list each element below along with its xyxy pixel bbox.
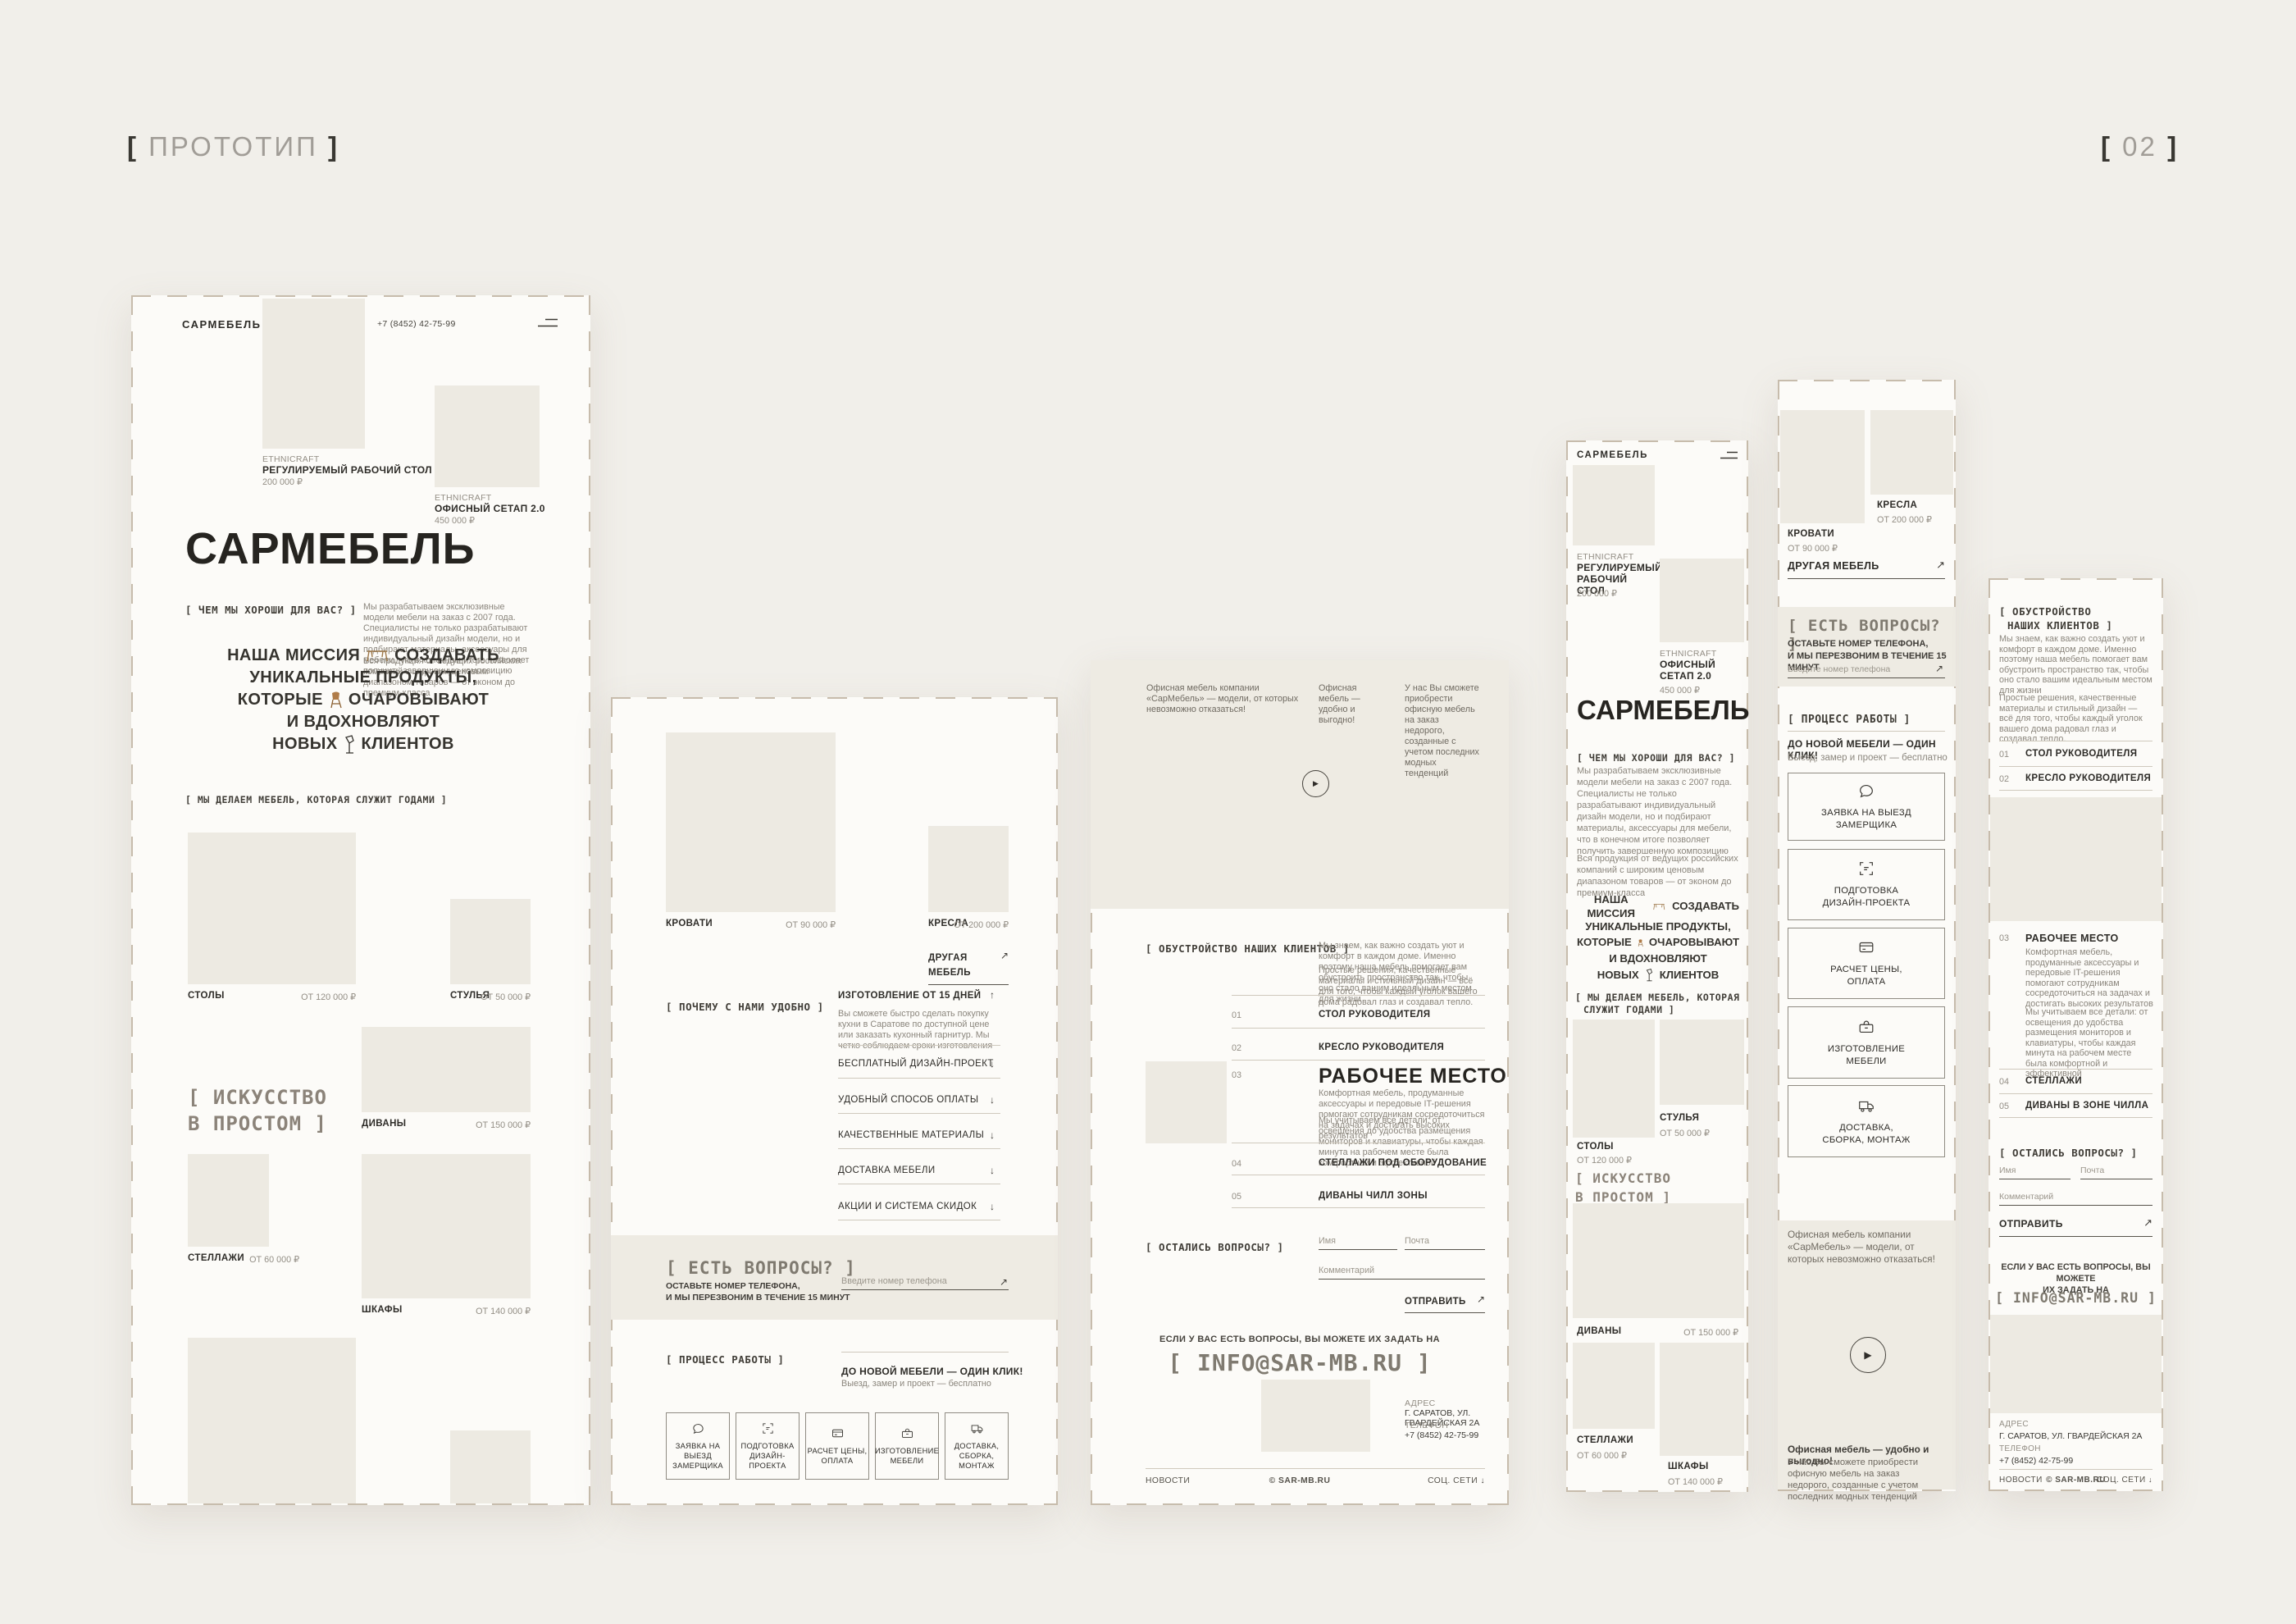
scan-icon xyxy=(761,1421,775,1435)
divider xyxy=(1232,1143,1485,1143)
accordion-item-title[interactable]: ИЗГОТОВЛЕНИЕ ОТ 15 ДНЕЙ xyxy=(838,991,981,1001)
arrow-up-right-icon: ↗ xyxy=(1477,1293,1485,1305)
promo-text: У нас Вы сможете приобрести офисную мебе… xyxy=(1405,683,1480,779)
art-label-line: [ ИСКУССТВО xyxy=(188,1084,327,1111)
phone-value: +7 (8452) 42-75-99 xyxy=(1405,1430,1478,1440)
divider xyxy=(838,1220,1000,1220)
product-brand: ETHNICRAFT xyxy=(1577,552,1634,562)
mission-statement: НАША МИССИЯ СОЗДАВАТЬ УНИКАЛЬНЫЕ ПРОДУКТ… xyxy=(221,645,505,755)
list-item-title[interactable]: КРЕСЛО РУКОВОДИТЕЛЯ xyxy=(1319,1042,1444,1052)
divider xyxy=(838,1148,1000,1149)
other-furniture-link[interactable]: ДРУГАЯ МЕБЕЛЬ ↗ xyxy=(928,950,1009,985)
arrow-up-right-icon[interactable]: ↗ xyxy=(1000,1276,1008,1288)
address-label: АДРЕС xyxy=(1999,1420,2029,1429)
process-step-label: ПОДГОТОВКАДИЗАЙН-ПРОЕКТА xyxy=(736,1441,799,1471)
product-name: ОФИСНЫЙ СЕТАП 2.0 xyxy=(1660,659,1738,682)
promo-text: У нас Вы сможете приобрести офисную мебе… xyxy=(1788,1457,1943,1503)
category-image xyxy=(1573,1203,1744,1318)
list-item-image xyxy=(1146,1061,1227,1143)
category-name: СТЕЛЛАЖИ xyxy=(1577,1435,1633,1445)
product-image xyxy=(1660,559,1744,642)
arrow-up-right-icon: ↗ xyxy=(1000,950,1009,961)
name-input[interactable] xyxy=(1319,1236,1397,1250)
hero-title: САРМЕБЕЛЬ xyxy=(185,523,476,574)
product-image xyxy=(262,299,365,449)
mission-line: И ВДОХНОВЛЯЮТ xyxy=(1577,952,1739,966)
cta-subtitle-line: И МЫ ПЕРЕЗВОНИМ В ТЕЧЕНИЕ 15 МИНУТ xyxy=(666,1293,850,1304)
header-phone: +7 (8452) 42-75-99 xyxy=(377,319,456,329)
phone-value: +7 (8452) 42-75-99 xyxy=(1999,1456,2073,1466)
divider xyxy=(1146,1468,1485,1469)
category-image xyxy=(1660,1343,1744,1456)
divider xyxy=(1232,995,1485,996)
artboard-mobile-catalog: КРОВАТИ ОТ 90 000 ₽ КРЕСЛА ОТ 200 000 ₽ … xyxy=(1778,380,1956,1491)
category-name: ШКАФЫ xyxy=(1668,1462,1709,1471)
mission-text: НОВЫХ xyxy=(1597,969,1639,983)
section-label-clients: [ ОБУСТРОЙСТВО НАШИХ КЛИЕНТОВ ] xyxy=(1999,604,2112,632)
artboard-mobile-home: САРМЕБЕЛЬ ETHNICRAFT РЕГУЛИРУЕМЫЙ РАБОЧИ… xyxy=(1566,440,1748,1492)
list-item-title[interactable]: СТЕЛЛАЖИ ПОД ОБОРУДОВАНИЕ xyxy=(1319,1158,1487,1168)
cta-subtitle-line: ОСТАВЬТЕ НОМЕР ТЕЛЕФОНА, xyxy=(666,1281,850,1293)
list-num: 02 xyxy=(1999,774,2009,784)
section-label-about: [ ЧЕМ МЫ ХОРОШИ ДЛЯ ВАС? ] xyxy=(1577,752,1735,764)
category-price: ОТ 140 000 ₽ xyxy=(449,1306,531,1316)
list-num: 05 xyxy=(1999,1102,2009,1111)
mission-text: ОЧАРОВЫВАЮТ xyxy=(348,689,489,711)
hero-title: САРМЕБЕЛЬ xyxy=(1577,695,1750,726)
category-price: ОТ 140 000 ₽ xyxy=(1668,1476,1723,1487)
divider xyxy=(1999,1469,2152,1470)
arrow-down-icon: ↓ xyxy=(1481,1476,1486,1485)
clients-paragraph: Мы знаем, как важно создать уют и комфор… xyxy=(1999,634,2153,696)
divider xyxy=(1232,1060,1485,1061)
cta-subtitle-line: ОСТАВЬТЕ НОМЕР ТЕЛЕФОНА, xyxy=(1788,638,1956,650)
process-title: ДО НОВОЙ МЕБЕЛИ — ОДИН КЛИК! xyxy=(841,1366,1023,1377)
product-brand: ETHNICRAFT xyxy=(262,454,320,464)
category-image xyxy=(1573,1020,1655,1138)
mission-text: И ВДОХНОВЛЯЮТ xyxy=(287,711,440,733)
divider xyxy=(1999,741,2152,741)
section-label-catalog: [ МЫ ДЕЛАЕМ МЕБЕЛЬ, КОТОРАЯ СЛУЖИТ ГОДАМ… xyxy=(1575,992,1739,1016)
divider xyxy=(1232,1207,1485,1208)
mission-line: УНИКАЛЬНЫЕ ПРОДУКТЫ, xyxy=(1577,920,1739,934)
divider xyxy=(1232,1175,1485,1175)
promo-text: Офисная мебель компании «СарМебель» — мо… xyxy=(1788,1229,1935,1266)
chat-icon xyxy=(691,1421,705,1435)
truck-icon xyxy=(1857,1097,1875,1115)
process-step-card: ДОСТАВКА,СБОРКА, МОНТАЖ xyxy=(945,1412,1009,1480)
section-label-catalog: [ МЫ ДЕЛАЕМ МЕБЕЛЬ, КОТОРАЯ СЛУЖИТ ГОДАМ… xyxy=(185,794,447,805)
mission-text: НОВЫХ xyxy=(272,733,337,755)
mission-text: УНИКАЛЬНЫЕ ПРОДУКТЫ, xyxy=(249,667,476,689)
process-step-label: ДОСТАВКА,СБОРКА, МОНТАЖ xyxy=(1822,1122,1910,1147)
divider xyxy=(838,1045,1000,1046)
contact-question: ЕСЛИ У ВАС ЕСТЬ ВОПРОСЫ, ВЫ МОЖЕТЕ ИХ ЗА… xyxy=(1091,1334,1509,1344)
table-icon xyxy=(1652,902,1665,910)
mission-statement: НАША МИССИЯ СОЗДАВАТЬ УНИКАЛЬНЫЕ ПРОДУКТ… xyxy=(1577,893,1739,985)
product-image xyxy=(435,385,540,487)
category-price: ОТ 60 000 ₽ xyxy=(221,1254,299,1265)
other-furniture-label: ДРУГАЯ МЕБЕЛЬ xyxy=(928,953,971,978)
scan-icon xyxy=(1857,860,1875,878)
catalog-label-line: СЛУЖИТ ГОДАМИ ] xyxy=(1583,1004,1739,1016)
art-label-line: [ ИСКУССТВО xyxy=(1575,1169,1671,1188)
artboard-desktop-catalog: КРОВАТИ ОТ 90 000 ₽ КРЕСЛА ОТ 200 000 ₽ … xyxy=(611,697,1058,1505)
category-image xyxy=(450,1430,531,1503)
list-num: 03 xyxy=(1232,1070,1241,1080)
clients-label-line: НАШИХ КЛИЕНТОВ ] xyxy=(2007,618,2112,632)
category-name: СТОЛЫ xyxy=(188,991,225,1001)
category-price: ОТ 120 000 ₽ xyxy=(274,992,356,1002)
list-num: 03 xyxy=(1999,933,2009,943)
play-button[interactable]: ▶ xyxy=(1302,770,1329,797)
list-item-title[interactable]: ДИВАНЫ В ЗОНЕ ЧИЛЛА xyxy=(2025,1101,2148,1111)
product-brand: ETHNICRAFT xyxy=(1660,649,1717,659)
footer-social-label: СОЦ. СЕТИ xyxy=(1428,1476,1478,1485)
accordion-item-title[interactable]: ДОСТАВКА МЕБЕЛИ xyxy=(838,1166,935,1175)
phone-input[interactable] xyxy=(1788,664,1945,678)
email-input[interactable] xyxy=(2080,1166,2152,1179)
category-price: ОТ 50 000 ₽ xyxy=(1660,1128,1710,1138)
process-step-card: ДОСТАВКА,СБОРКА, МОНТАЖ xyxy=(1788,1085,1945,1157)
mission-text: И ВДОХНОВЛЯЮТ xyxy=(1609,952,1706,966)
category-image xyxy=(666,732,836,912)
menu-burger-icon[interactable] xyxy=(538,318,558,327)
process-step-label: РАСЧЕТ ЦЕНЫ,ОПЛАТА xyxy=(1830,964,1902,988)
accordion-item-title[interactable]: БЕСПЛАТНЫЙ ДИЗАЙН-ПРОЕКТ xyxy=(838,1059,994,1069)
arrow-up-right-icon[interactable]: ↗ xyxy=(1935,663,1943,674)
section-label-process: [ ПРОЦЕСС РАБОТЫ ] xyxy=(1788,714,1911,726)
contact-email-link[interactable]: [ INFO@SAR-MB.RU ] xyxy=(1988,1290,2163,1306)
phone-label: ТЕЛЕФОН xyxy=(1999,1444,2041,1453)
mission-line: И ВДОХНОВЛЯЮТ xyxy=(221,711,505,733)
category-name: ШКАФЫ xyxy=(362,1305,403,1315)
divider xyxy=(838,1184,1000,1184)
category-name: СТОЛЫ xyxy=(1577,1142,1614,1152)
mission-text: КОТОРЫЕ xyxy=(1577,936,1632,950)
mission-text: СОЗДАВАТЬ xyxy=(394,645,499,667)
other-furniture-label: ДРУГАЯ МЕБЕЛЬ xyxy=(1788,560,1879,572)
page-number-label: [ 02 ] xyxy=(2101,131,2179,162)
process-step-label: ИЗГОТОВЛЕНИЕМЕБЕЛИ xyxy=(875,1446,939,1466)
artboard-mobile-about: [ ОБУСТРОЙСТВО НАШИХ КЛИЕНТОВ ] Мы знаем… xyxy=(1988,578,2163,1491)
category-name: ДИВАНЫ xyxy=(1577,1326,1621,1336)
submit-button[interactable]: ОТПРАВИТЬ ↗ xyxy=(1999,1216,2152,1237)
category-price: ОТ 200 000 ₽ xyxy=(943,919,1009,930)
section-label-form: [ ОСТАЛИСЬ ВОПРОСЫ? ] xyxy=(1999,1147,2138,1159)
category-image xyxy=(1573,1343,1655,1429)
category-price: ОТ 60 000 ₽ xyxy=(1577,1450,1627,1461)
comment-input[interactable] xyxy=(1319,1266,1485,1280)
contact-question-line: ЕСЛИ У ВАС ЕСТЬ ВОПРОСЫ, ВЫ МОЖЕТЕ xyxy=(1988,1261,2163,1284)
truck-icon xyxy=(970,1421,984,1435)
product-image xyxy=(1573,465,1655,545)
bracket: [ xyxy=(2101,131,2112,162)
mission-text: КЛИЕНТОВ xyxy=(362,733,454,755)
process-step-label: ИЗГОТОВЛЕНИЕМЕБЕЛИ xyxy=(1828,1043,1905,1068)
category-name: КРЕСЛА xyxy=(1877,500,1917,510)
divider xyxy=(1232,1028,1485,1029)
art-label-line: В ПРОСТОМ ] xyxy=(188,1111,327,1137)
cta-label: [ ЕСТЬ ВОПРОСЫ? ] xyxy=(666,1258,856,1278)
process-step-card: РАСЧЕТ ЦЕНЫ,ОПЛАТА xyxy=(1788,928,1945,999)
product-price: 200 000 ₽ xyxy=(262,477,303,487)
arrow-down-icon: ↓ xyxy=(990,1165,995,1176)
chair-icon xyxy=(1638,937,1644,949)
chair-icon xyxy=(329,691,343,709)
list-item-title[interactable]: ДИВАНЫ ЧИЛЛ ЗОНЫ xyxy=(1319,1191,1428,1201)
play-button[interactable]: ▶ xyxy=(1850,1337,1886,1373)
footer-social-label: СОЦ. СЕТИ xyxy=(2097,1476,2145,1485)
divider xyxy=(1999,1093,2152,1094)
arrow-down-icon: ↓ xyxy=(990,1201,995,1212)
mission-line: КОТОРЫЕ ОЧАРОВЫВАЮТ xyxy=(221,689,505,711)
play-icon: ▶ xyxy=(1313,779,1319,788)
process-step-label: ЗАЯВКА НА ВЫЕЗДЗАМЕРЩИКА xyxy=(1821,807,1911,832)
comment-input[interactable] xyxy=(1999,1192,2152,1206)
divider xyxy=(838,1113,1000,1114)
list-item-title[interactable]: СТЕЛЛАЖИ xyxy=(2025,1076,2082,1086)
category-image xyxy=(362,1027,531,1112)
category-name: СТУЛЬЯ xyxy=(1660,1113,1699,1123)
bracket: ] xyxy=(2167,131,2179,162)
process-step-card: ЗАЯВКА НА ВЫЕЗДЗАМЕРЩИКА xyxy=(666,1412,730,1480)
play-icon: ▶ xyxy=(1864,1349,1871,1361)
phone-label: ТЕЛЕФОН xyxy=(1405,1421,1448,1430)
mission-line: НОВЫХ КЛИЕНТОВ xyxy=(1577,965,1739,985)
list-item-title[interactable]: СТОЛ РУКОВОДИТЕЛЯ xyxy=(1319,1010,1430,1020)
list-item-title[interactable]: СТОЛ РУКОВОДИТЕЛЯ xyxy=(2025,749,2137,759)
video-section: Офисная мебель компании «СарМебель» — мо… xyxy=(1091,660,1509,909)
list-item-title[interactable]: КРЕСЛО РУКОВОДИТЕЛЯ xyxy=(2025,773,2151,783)
art-in-simple-label: [ ИСКУССТВО В ПРОСТОМ ] xyxy=(1575,1169,1671,1207)
mission-text: УНИКАЛЬНЫЕ ПРОДУКТЫ, xyxy=(1585,920,1731,934)
product-name: ОФИСНЫЙ СЕТАП 2.0 xyxy=(435,503,545,514)
process-step-card: ПОДГОТОВКАДИЗАЙН-ПРОЕКТА xyxy=(736,1412,799,1480)
video-section: Офисная мебель компании «СарМебель» — мо… xyxy=(1778,1220,1956,1489)
cta-strip: [ ЕСТЬ ВОПРОСЫ? ] ОСТАВЬТЕ НОМЕР ТЕЛЕФОН… xyxy=(611,1235,1058,1320)
section-label-form: [ ОСТАЛИСЬ ВОПРОСЫ? ] xyxy=(1146,1241,1284,1253)
bracket: ] xyxy=(328,131,339,162)
submit-label: ОТПРАВИТЬ xyxy=(1405,1297,1466,1307)
category-image xyxy=(188,1154,269,1247)
mission-text: НАША МИССИЯ xyxy=(1577,893,1646,920)
category-price: ОТ 150 000 ₽ xyxy=(449,1120,531,1130)
phone-input[interactable] xyxy=(841,1276,1009,1290)
category-image xyxy=(188,833,356,984)
arrow-down-icon: ↓ xyxy=(990,1094,995,1106)
accordion-item-title[interactable]: АКЦИИ И СИСТЕМА СКИДОК xyxy=(838,1202,977,1211)
toolbox-icon xyxy=(900,1426,914,1440)
prototype-label: [ ПРОТОТИП ] xyxy=(127,131,339,162)
clients-paragraph: Простые решения, качественные материалы … xyxy=(1319,965,1480,1008)
divider xyxy=(1999,790,2152,791)
process-step-label: ЗАЯВКА НА ВЫЕЗДЗАМЕРЩИКА xyxy=(667,1441,729,1471)
arrow-down-icon: ↓ xyxy=(990,1058,995,1070)
category-price: ОТ 120 000 ₽ xyxy=(1577,1155,1632,1166)
category-price: ОТ 200 000 ₽ xyxy=(1877,514,1932,525)
arrow-down-icon: ↓ xyxy=(2148,1476,2152,1484)
list-num: 04 xyxy=(1999,1077,2009,1087)
promo-text: Офисная мебель — удобно и выгодно! xyxy=(1319,683,1384,726)
mission-text: КОТОРЫЕ xyxy=(238,689,323,711)
prototype-poster: { "page": { "proto_bracket_open": "[", "… xyxy=(0,0,2296,1624)
map-placeholder xyxy=(1990,1315,2162,1413)
mission-line: КОТОРЫЕ ОЧАРОВЫВАЮТ xyxy=(1577,934,1739,952)
contact-email-link[interactable]: [ INFO@SAR-MB.RU ] xyxy=(1091,1349,1509,1376)
about-paragraph: Вся продукция от ведущих российских комп… xyxy=(1577,853,1739,899)
address-label: АДРЕС xyxy=(1405,1398,1436,1408)
table-icon xyxy=(366,650,389,662)
mission-text: НАША МИССИЯ xyxy=(227,645,360,667)
list-num: 04 xyxy=(1232,1159,1241,1169)
artboard-desktop-about: Офисная мебель компании «СарМебель» — мо… xyxy=(1091,660,1509,1505)
mission-line: НОВЫХ КЛИЕНТОВ xyxy=(221,733,505,755)
category-name: ДИВАНЫ xyxy=(362,1119,406,1129)
category-name: КРОВАТИ xyxy=(666,919,713,928)
art-in-simple-label: [ ИСКУССТВО В ПРОСТОМ ] xyxy=(188,1084,327,1137)
process-step-card: ИЗГОТОВЛЕНИЕМЕБЕЛИ xyxy=(875,1412,939,1480)
category-image xyxy=(1870,410,1953,495)
divider xyxy=(1999,1117,2152,1118)
section-label-about: [ ЧЕМ МЫ ХОРОШИ ДЛЯ ВАС? ] xyxy=(185,604,357,616)
footer-social-link[interactable]: СОЦ. СЕТИ ↓ xyxy=(2070,1476,2152,1485)
other-furniture-link[interactable]: ДРУГАЯ МЕБЕЛЬ ↗ xyxy=(1788,559,1945,579)
footer-social-link[interactable]: СОЦ. СЕТИ ↓ xyxy=(1403,1476,1485,1485)
lamp-icon xyxy=(1645,969,1653,982)
category-image xyxy=(362,1154,531,1298)
map-placeholder xyxy=(1261,1380,1370,1452)
divider xyxy=(838,1078,1000,1079)
process-step-card: ИЗГОТОВЛЕНИЕМЕБЕЛИ xyxy=(1788,1006,1945,1079)
category-price: ОТ 90 000 ₽ xyxy=(1788,543,1838,554)
category-name: КРОВАТИ xyxy=(1788,529,1834,539)
divider xyxy=(841,1352,1009,1353)
list-item-body: Комфортная мебель, продуманные аксессуар… xyxy=(2025,947,2154,1009)
list-num: 02 xyxy=(1232,1043,1241,1053)
mission-text: КЛИЕНТОВ xyxy=(1660,969,1720,983)
divider xyxy=(1788,731,1945,732)
product-brand: ETHNICRAFT xyxy=(435,493,492,503)
address-value: Г. САРАТОВ, УЛ. ГВАРДЕЙСКАЯ 2А xyxy=(1999,1431,2142,1441)
accordion-item-title[interactable]: УДОБНЫЙ СПОСОБ ОПЛАТЫ xyxy=(838,1095,978,1105)
card-icon xyxy=(1857,938,1875,956)
bracket: [ xyxy=(127,131,139,162)
arrow-up-right-icon: ↗ xyxy=(1936,559,1945,572)
mission-line: НАША МИССИЯ СОЗДАВАТЬ xyxy=(1577,893,1739,920)
prototype-label-text: ПРОТОТИП xyxy=(148,131,318,162)
mission-line: НАША МИССИЯ СОЗДАВАТЬ xyxy=(221,645,505,667)
process-step-label: ДОСТАВКА,СБОРКА, МОНТАЖ xyxy=(945,1441,1008,1471)
category-image xyxy=(188,1338,356,1503)
category-image xyxy=(1660,1020,1744,1105)
accordion-item-title[interactable]: КАЧЕСТВЕННЫЕ МАТЕРИАЛЫ xyxy=(838,1130,984,1140)
lamp-icon xyxy=(344,735,356,755)
process-step-label: ПОДГОТОВКАДИЗАЙН-ПРОЕКТА xyxy=(1823,885,1911,910)
card-icon xyxy=(831,1426,845,1440)
site-logo: САРМЕБЕЛЬ xyxy=(182,318,261,331)
site-logo: САРМЕБЕЛЬ xyxy=(1577,450,1648,460)
name-input[interactable] xyxy=(1999,1166,2070,1179)
chat-icon xyxy=(1857,782,1875,800)
process-step-card: ПОДГОТОВКАДИЗАЙН-ПРОЕКТА xyxy=(1788,849,1945,920)
section-label-process: [ ПРОЦЕСС РАБОТЫ ] xyxy=(666,1353,784,1366)
mission-line: УНИКАЛЬНЫЕ ПРОДУКТЫ, xyxy=(221,667,505,689)
page-number-text: 02 xyxy=(2122,131,2157,162)
divider xyxy=(1999,1069,2152,1070)
divider xyxy=(1999,766,2152,767)
category-price: ОТ 50 000 ₽ xyxy=(465,992,531,1002)
process-step-card: ЗАЯВКА НА ВЫЕЗДЗАМЕРЩИКА xyxy=(1788,773,1945,841)
submit-label: ОТПРАВИТЬ xyxy=(1999,1218,2063,1229)
cta-strip: [ ЕСТЬ ВОПРОСЫ? ] ОСТАВЬТЕ НОМЕР ТЕЛЕФОН… xyxy=(1778,607,1956,687)
list-item-image xyxy=(1990,797,2162,921)
process-subtitle: Выезд, замер и проект — бесплатно xyxy=(841,1379,991,1389)
process-subtitle: Выезд, замер и проект — бесплатно xyxy=(1788,753,1947,764)
category-price: ОТ 90 000 ₽ xyxy=(754,919,836,930)
arrow-up-right-icon: ↗ xyxy=(2143,1216,2152,1229)
category-image xyxy=(928,826,1009,912)
section-label-why: [ ПОЧЕМУ С НАМИ УДОБНО ] xyxy=(666,1001,824,1013)
category-image xyxy=(450,899,531,984)
process-step-card: РАСЧЕТ ЦЕНЫ,ОПЛАТА xyxy=(805,1412,869,1480)
list-num: 01 xyxy=(1999,750,2009,760)
clients-label-line: [ ОБУСТРОЙСТВО xyxy=(1999,604,2112,618)
artboard-desktop-home: САРМЕБЕЛЬ +7 (8452) 42-75-99 ETHNICRAFT … xyxy=(131,295,590,1505)
promo-text: Офисная мебель компании «СарМебель» — мо… xyxy=(1146,683,1310,715)
mission-text: ОЧАРОВЫВАЮТ xyxy=(1649,936,1739,950)
arrow-up-icon: ↑ xyxy=(990,989,995,1001)
product-name: РЕГУЛИРУЕМЫЙ РАБОЧИЙ СТОЛ xyxy=(262,464,432,476)
clients-paragraph: Простые решения, качественные материалы … xyxy=(1999,693,2153,745)
toolbox-icon xyxy=(1857,1018,1875,1036)
list-item-title-expanded[interactable]: РАБОЧЕЕ МЕСТО xyxy=(1319,1065,1507,1088)
submit-button[interactable]: ОТПРАВИТЬ ↗ xyxy=(1405,1293,1485,1313)
category-price: ОТ 150 000 ₽ xyxy=(1656,1327,1738,1338)
product-price: 200 000 ₽ xyxy=(1577,588,1617,599)
cta-subtitle: ОСТАВЬТЕ НОМЕР ТЕЛЕФОНА, И МЫ ПЕРЕЗВОНИМ… xyxy=(666,1281,850,1303)
arrow-down-icon: ↓ xyxy=(990,1129,995,1141)
email-input[interactable] xyxy=(1405,1236,1485,1250)
list-item-title-expanded[interactable]: РАБОЧЕЕ МЕСТО xyxy=(2025,933,2119,944)
mission-text: СОЗДАВАТЬ xyxy=(1672,900,1739,914)
category-image xyxy=(1780,410,1865,523)
catalog-label-line: [ МЫ ДЕЛАЕМ МЕБЕЛЬ, КОТОРАЯ xyxy=(1575,992,1739,1004)
list-num: 05 xyxy=(1232,1192,1241,1202)
menu-burger-icon[interactable] xyxy=(1720,451,1738,459)
about-paragraph: Мы разрабатываем эксклюзивные модели меб… xyxy=(1577,765,1739,857)
process-step-label: РАСЧЕТ ЦЕНЫ,ОПЛАТА xyxy=(808,1446,868,1466)
list-num: 01 xyxy=(1232,1010,1241,1020)
